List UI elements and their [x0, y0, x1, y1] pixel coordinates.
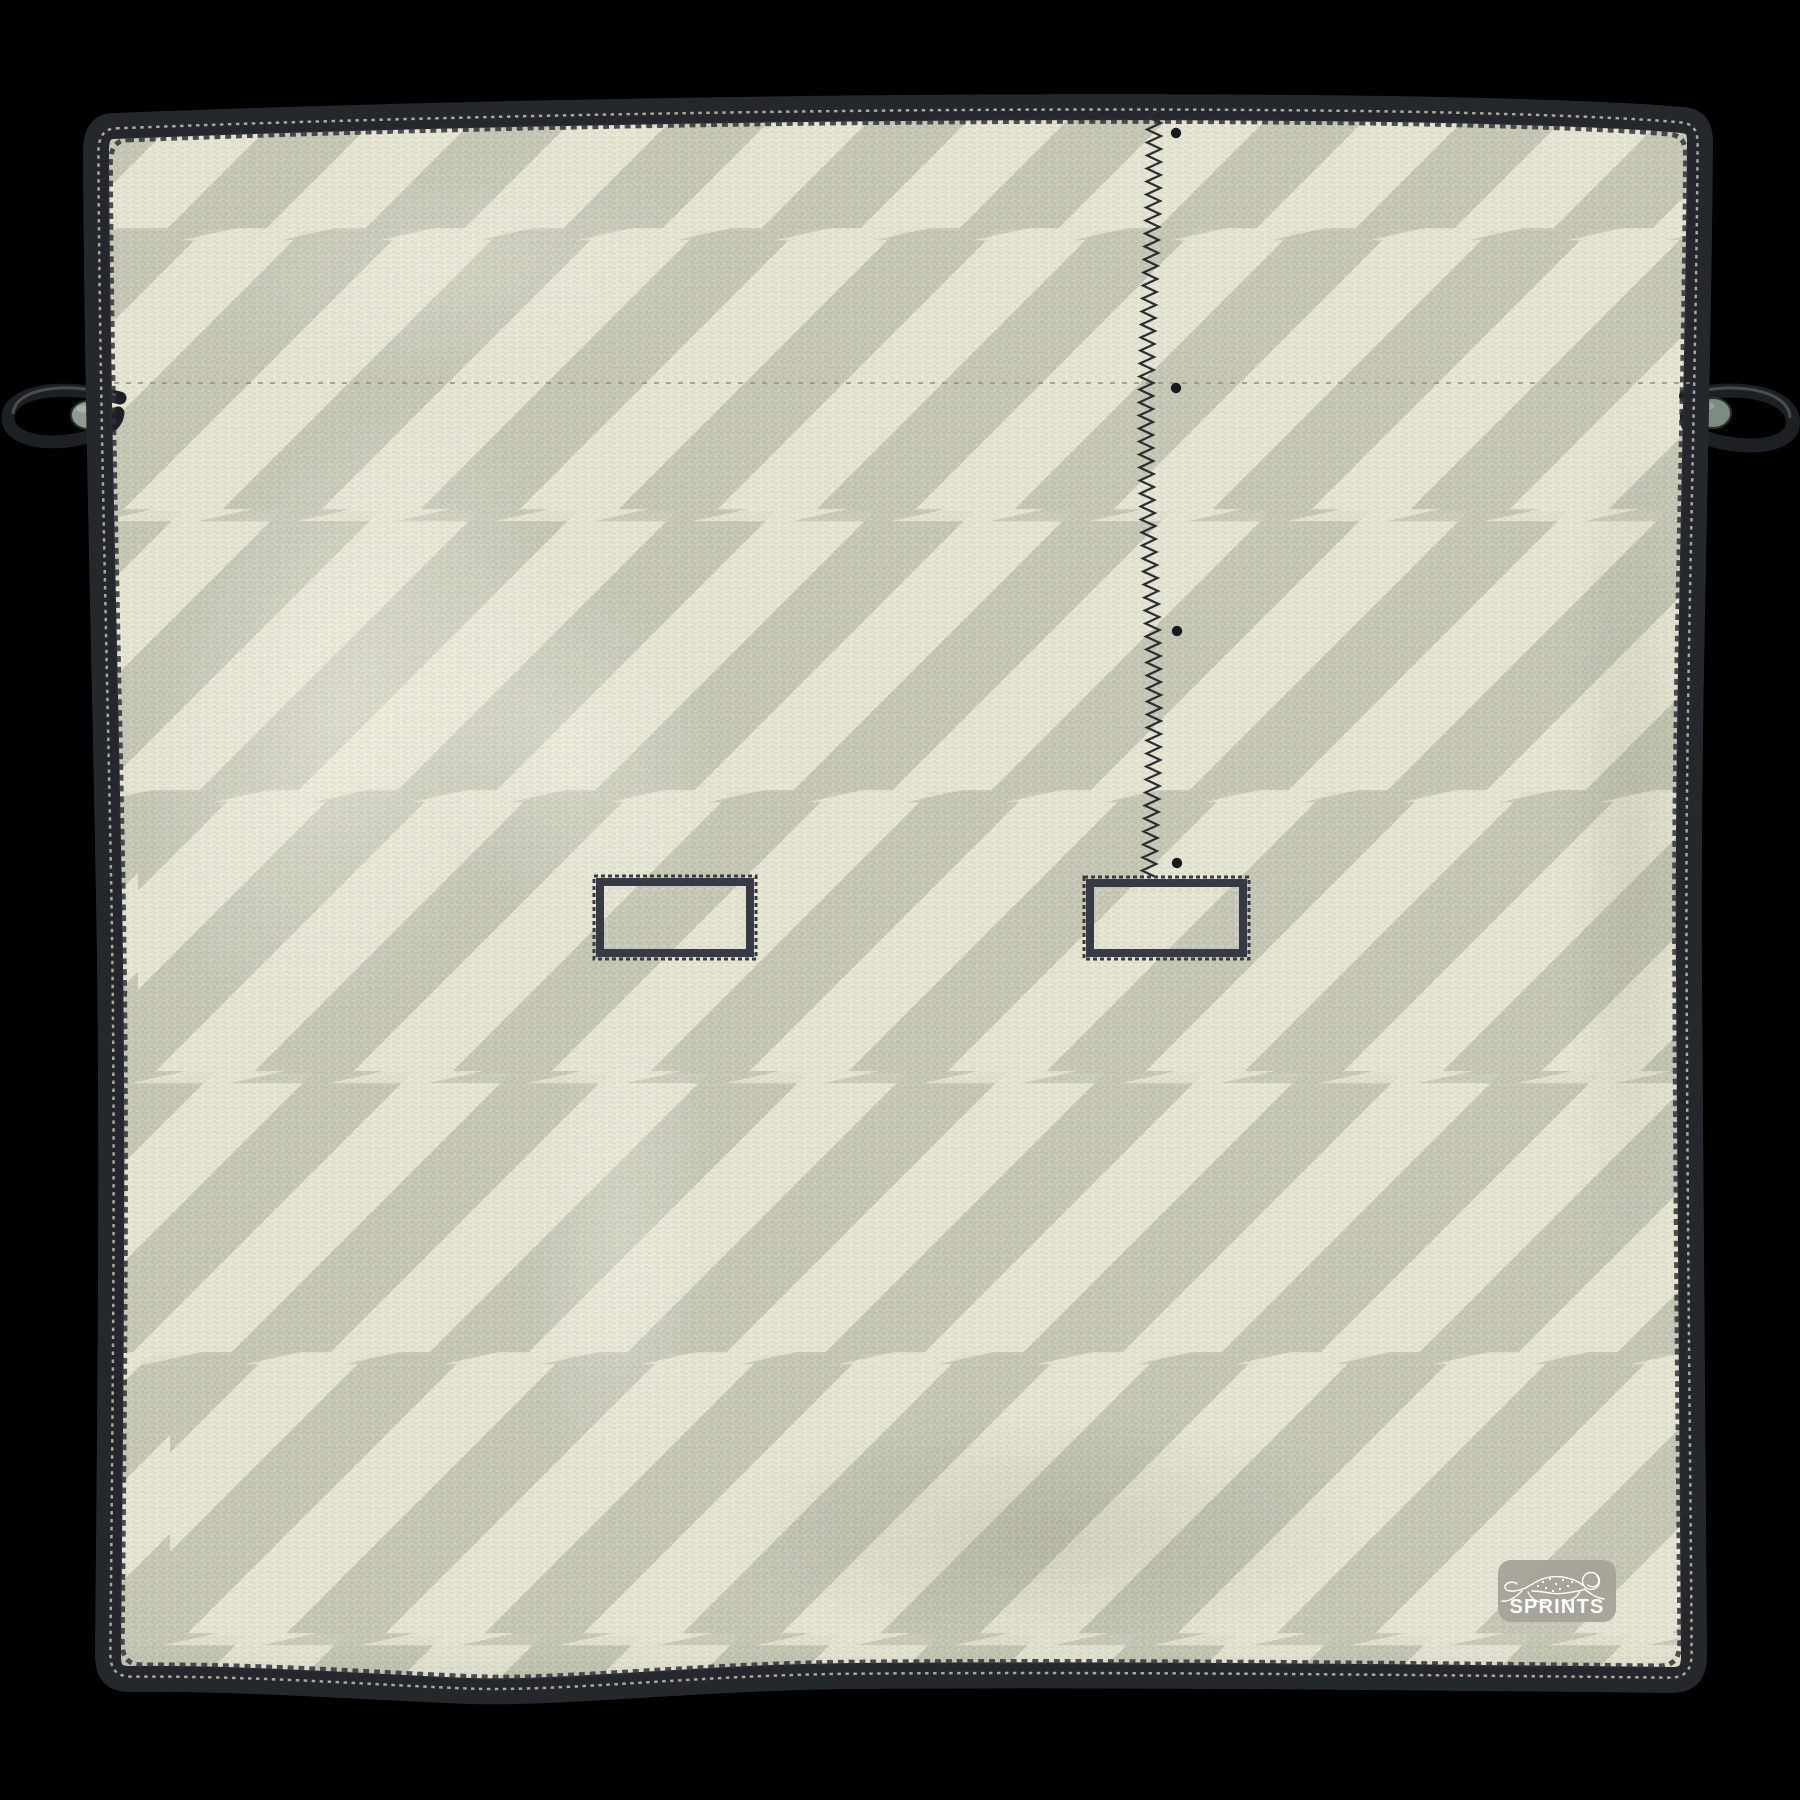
- product-photo-stage: SPRINTS: [0, 0, 1800, 1800]
- towel: [0, 0, 1800, 1800]
- edge-shading: [0, 0, 1800, 1800]
- toggle-bead-right: [1695, 398, 1731, 428]
- corner-loop-right: [1686, 388, 1793, 446]
